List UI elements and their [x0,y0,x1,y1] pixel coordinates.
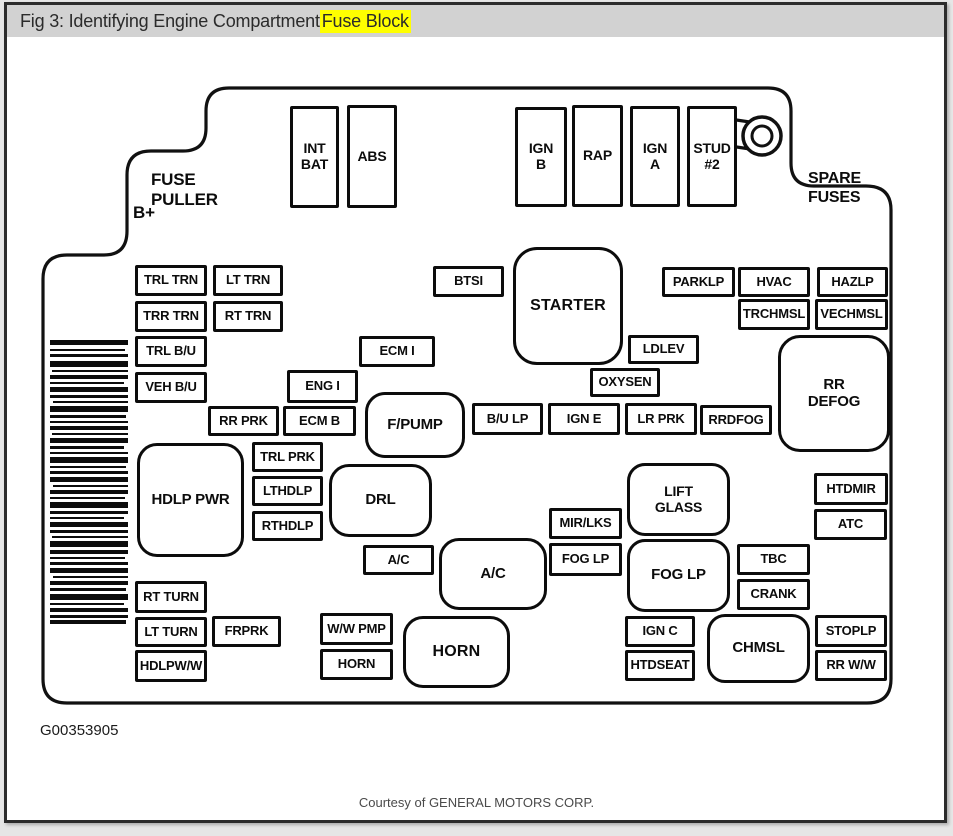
fuse-ldlev: LDLEV [628,335,699,364]
credit-line: Courtesy of GENERAL MOTORS CORP. [0,795,953,810]
fuse-rap: RAP [572,105,623,207]
fuse-vechmsl: VECHMSL [815,299,888,330]
figure-id: G00353905 [40,722,118,739]
fuse-trl-trn: TRL TRN [135,265,207,296]
fuse-starter: STARTER [513,247,623,365]
fuse-lthdlp: LTHDLP [252,476,323,506]
fuse-stud-2: STUD #2 [687,106,737,207]
fuse-ecm-b: ECM B [283,406,356,436]
label-fuse-puller: FUSE PULLER [151,170,218,210]
fuse-rr-defog: RR DEFOG [778,335,890,452]
fuse-lift-glass: LIFT GLASS [627,463,730,536]
fuse-btsi: BTSI [433,266,504,297]
fuse-fog-lp-big: FOG LP [627,539,730,612]
fuse-rr-prk: RR PRK [208,406,279,436]
fuse-hvac: HVAC [738,267,810,297]
fuse-parklp: PARKLP [662,267,735,297]
fuse-ign-b: IGN B [515,107,567,207]
fuse-hdlpww: HDLPW/W [135,650,207,682]
fuse-htdmir: HTDMIR [814,473,888,505]
fuse-rrdfog: RRDFOG [700,405,772,435]
fuse-stoplp: STOPLP [815,615,887,647]
fuse-ign-a: IGN A [630,106,680,207]
fuse-rthdlp: RTHDLP [252,511,323,541]
fuse-ac-big: A/C [439,538,547,610]
label-b-plus: B+ [133,203,155,223]
fuse-ecm-i: ECM I [359,336,435,367]
fuse-ww-pmp: W/W PMP [320,613,393,645]
fuse-eng-i: ENG I [287,370,358,403]
fuse-drl: DRL [329,464,432,537]
fuse-trl-prk: TRL PRK [252,442,323,472]
fuse-lr-prk: LR PRK [625,403,697,435]
fuse-bu-lp: B/U LP [472,403,543,435]
fuse-int-bat: INT BAT [290,106,339,208]
fuse-ign-e: IGN E [548,403,620,435]
fuse-fog-lp-small: FOG LP [549,543,622,576]
fuse-mir-lks: MIR/LKS [549,508,622,539]
fuse-hdlp-pwr: HDLP PWR [137,443,244,557]
fuse-trchmsl: TRCHMSL [738,299,810,330]
label-spare-fuses: SPARE FUSES [808,170,861,208]
fuse-chmsl: CHMSL [707,614,810,683]
fuse-ac-small: A/C [363,545,434,575]
fuse-rt-trn: RT TRN [213,301,283,332]
fuse-oxysen: OXYSEN [590,368,660,397]
fuse-tbc: TBC [737,544,810,575]
fuse-lt-trn: LT TRN [213,265,283,296]
fuse-veh-bu: VEH B/U [135,372,207,403]
fuse-trr-trn: TRR TRN [135,301,207,332]
fuse-f-pump: F/PUMP [365,392,465,458]
fuse-horn-big: HORN [403,616,510,688]
fuse-block-diagram: FUSE PULLER B+ SPARE FUSES INT BAT ABS I… [0,0,953,836]
barcode [50,340,128,624]
fuse-lt-turn: LT TURN [135,617,207,647]
fuse-crank: CRANK [737,579,810,610]
fuse-ign-c: IGN C [625,616,695,647]
fuse-htdseat: HTDSEAT [625,650,695,681]
fuse-hazlp: HAZLP [817,267,888,297]
fuse-rr-ww: RR W/W [815,650,887,681]
fuse-rt-turn: RT TURN [135,581,207,613]
fuse-atc: ATC [814,509,887,540]
fuse-trl-bu: TRL B/U [135,336,207,367]
fuse-horn-small: HORN [320,649,393,680]
fuse-frprk: FRPRK [212,616,281,647]
fuse-abs: ABS [347,105,397,208]
